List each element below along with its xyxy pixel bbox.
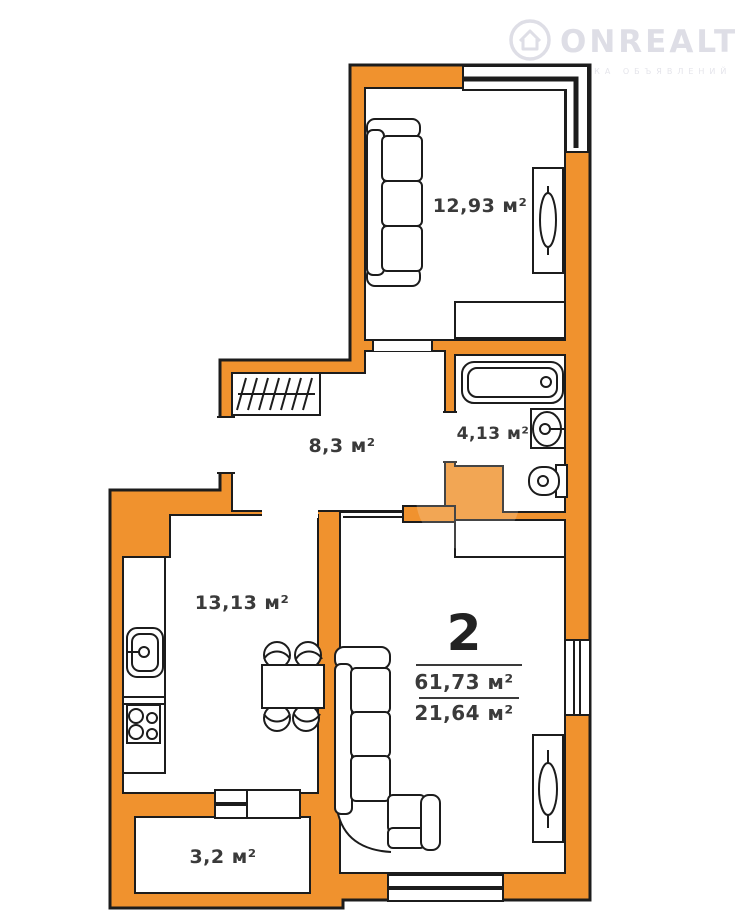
stove-icon: [127, 705, 160, 743]
kitchen-doorway: [262, 504, 318, 518]
balcony-area-label: 3,2 м²: [143, 846, 303, 868]
apartment-rooms-count: 2: [384, 606, 544, 660]
bathtub-icon: [462, 362, 563, 403]
hallway-door: [217, 417, 235, 473]
bathroom-area-label: 4,13 м²: [433, 424, 553, 444]
apartment-total-area: 61,73 м²: [384, 670, 544, 694]
toilet-icon: [529, 465, 567, 497]
wardrobe-icon: [455, 302, 565, 338]
hallway-area-label: 8,3 м²: [272, 435, 412, 457]
living-radiator-icon: [533, 735, 563, 842]
radiator-icon: [533, 168, 563, 273]
center-watermark-icon: [416, 446, 520, 550]
living-side-window: [565, 640, 590, 715]
kitchen-area-label: 13,13 м²: [162, 592, 322, 614]
coat-rack-icon: [232, 373, 320, 415]
summary-divider-top: [416, 664, 522, 666]
bedroom-area-label: 12,93 м²: [400, 195, 560, 217]
apartment-living-area: 21,64 м²: [384, 701, 544, 725]
floor-plan: ONREALT ДОСКА ОБЪЯВЛЕНИЙ: [0, 0, 744, 910]
summary-divider-bottom: [419, 697, 519, 699]
kitchen-sink-icon: [127, 628, 163, 677]
bedroom-door: [373, 341, 432, 351]
